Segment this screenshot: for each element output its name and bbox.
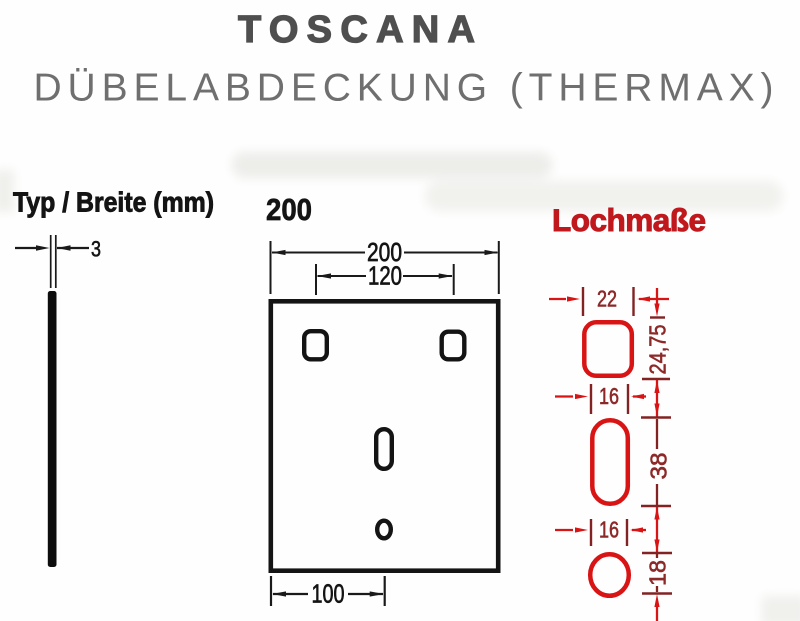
svg-text:22: 22 [597, 286, 617, 312]
svg-text:18: 18 [645, 560, 671, 586]
svg-text:DÜBELABDECKUNG (THERMAX): DÜBELABDECKUNG (THERMAX) [34, 67, 774, 110]
svg-text:16: 16 [599, 517, 619, 543]
svg-text:16: 16 [599, 383, 619, 409]
svg-text:120: 120 [368, 261, 402, 291]
svg-text:38: 38 [646, 453, 672, 480]
svg-text:24,75: 24,75 [645, 325, 671, 375]
svg-text:Lochmaße: Lochmaße [552, 202, 706, 238]
svg-text:200: 200 [266, 192, 312, 227]
svg-text:Typ / Breite (mm): Typ / Breite (mm) [13, 187, 214, 218]
svg-text:100: 100 [312, 579, 345, 609]
svg-text:3: 3 [91, 237, 101, 262]
